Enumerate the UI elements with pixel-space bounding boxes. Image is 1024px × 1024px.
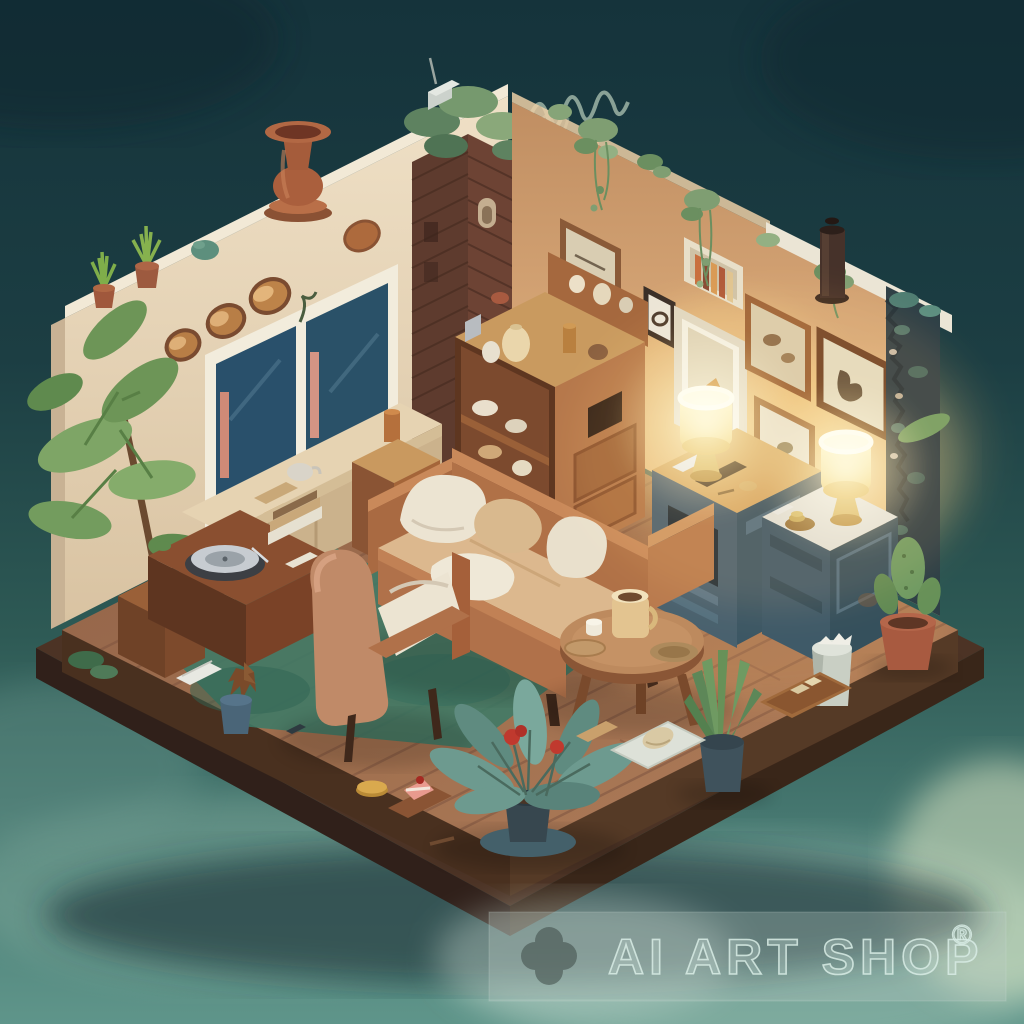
- watermark-text: AI ART SHOP: [608, 929, 983, 985]
- left-wall-end: [51, 318, 65, 629]
- ground-leaves: [90, 665, 118, 679]
- pottery-jar: [512, 460, 532, 476]
- chimney-pipe: [815, 218, 849, 305]
- artwork-canvas: AI ART SHOP ®: [0, 0, 1024, 1024]
- amber-jar: [384, 412, 400, 442]
- small-plant: [155, 541, 171, 551]
- red-flower: [550, 740, 564, 754]
- cap-succulent: [889, 292, 919, 308]
- tower-slot: [424, 222, 438, 242]
- pottery-bowl: [472, 400, 498, 416]
- cap-succulent: [919, 305, 941, 317]
- pottery-loaf: [478, 445, 502, 459]
- tower-slot: [424, 262, 438, 282]
- hanging-strip: [220, 392, 229, 478]
- kettle: [287, 463, 313, 481]
- isometric-room-scene: AI ART SHOP ®: [0, 0, 1024, 1024]
- pottery-bowl: [505, 419, 527, 433]
- tower-pot: [491, 292, 509, 304]
- lamp-glow-overlay: [570, 290, 990, 610]
- hanging-strip: [310, 352, 319, 438]
- plate: [565, 640, 605, 656]
- registered-mark: ®: [952, 920, 972, 950]
- watermark-band: AI ART SHOP ®: [435, 896, 1006, 1020]
